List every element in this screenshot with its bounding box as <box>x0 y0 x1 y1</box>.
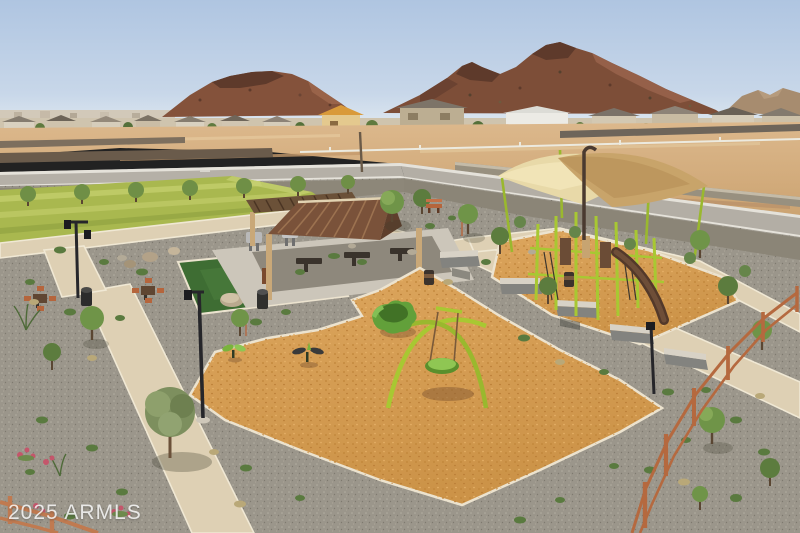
aerial-park-photo: 2025 ARMLS <box>0 0 800 533</box>
climbing-panel <box>600 242 611 268</box>
trash-can <box>424 270 434 285</box>
climbing-panel <box>560 238 571 265</box>
scene-canvas <box>0 0 800 533</box>
trash-can <box>257 289 268 309</box>
trash-can <box>564 272 574 287</box>
trash-can <box>81 287 92 306</box>
